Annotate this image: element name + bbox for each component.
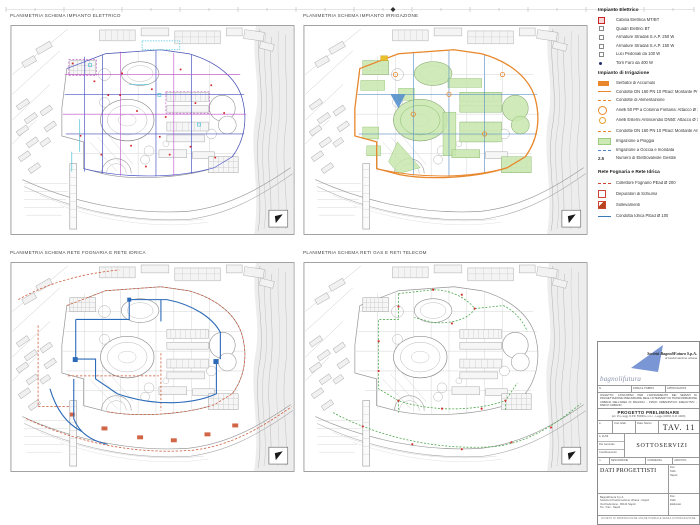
phase-subtitle: (art. 15 e segg. D.P.R. 554/99 e s.m.i. … xyxy=(598,415,699,418)
elettrovalvole-symbol: 2.5 xyxy=(598,156,613,161)
legend-item: Cabina Elettrica MT/BT xyxy=(598,16,698,25)
condotte-antincendio-symbol xyxy=(598,131,613,132)
drawing-title: SOTTOSERVIZI xyxy=(625,434,699,457)
legend-item: Torri Faro da 400 W xyxy=(598,59,698,68)
legend-item: Anelli Esterni Antincendio DN50: Attacco… xyxy=(598,115,698,126)
rev-header-cell: DESCRIZIONE xyxy=(610,458,646,464)
armature-150-symbol xyxy=(598,44,613,49)
condotta-idrica-symbol xyxy=(598,216,613,217)
panel-title-electrical: PLANIMETRIA SCHEMA IMPIANTO ELETTRICO xyxy=(10,13,121,18)
legend-item: Condotte di Alimentazione xyxy=(598,96,698,105)
anelli-esterni-symbol xyxy=(598,117,613,124)
legend-item: Collettore Fognario PEad Ø 200 xyxy=(598,178,698,189)
plan-panel-irrigation xyxy=(303,25,588,235)
plan-panel-gas-telecom xyxy=(303,262,588,472)
phase-row: PROGETTO PRELIMINARE (art. 15 e segg. D.… xyxy=(598,409,699,421)
title-block: Società BagnoliFutura S.p.A. di trasform… xyxy=(597,341,700,525)
designers-side-info: Doc. Tabb. Napoli xyxy=(668,465,699,493)
stack-cell: Coordinamento xyxy=(598,450,624,457)
legend-item: Serbatoi di Accumulo xyxy=(598,79,698,88)
tav-cell: Cod. Elab. xyxy=(613,421,636,433)
company-wordmark: bagnolifutura xyxy=(600,375,641,383)
condotte-principali-symbol xyxy=(598,91,613,92)
legend-item: Irrigazione a Goccia e Inondata xyxy=(598,146,698,155)
legend-item: Quadri Elettrici BT xyxy=(598,25,698,34)
drawing-title-row: a. 11/06 File Generale Coordinamento SOT… xyxy=(598,434,699,458)
tav-number: TAV. 11 xyxy=(659,421,699,433)
legend-item: Sollevamenti xyxy=(598,200,698,211)
panel-title-sewer-water: PLANIMETRIA SCHEMA RETE FOGNARIA E RETE … xyxy=(10,250,146,255)
legend-item: Depuratori di Schiuma xyxy=(598,189,698,200)
tav-cell: Data: Marzo xyxy=(636,421,659,433)
legend-irrigation: Impianto di Irrigazione Serbatoi di Accu… xyxy=(598,71,698,163)
armature-250-symbol xyxy=(598,35,613,40)
stack-cell: File Generale xyxy=(598,442,624,450)
designers-label: DATI PROGETTISTI xyxy=(598,465,668,493)
rev-header-cell: ARCHIVIO xyxy=(673,458,699,464)
legend-sewer-water: Rete Fognaria e Rete Idrica Collettore F… xyxy=(598,170,698,222)
sollevamenti-symbol xyxy=(598,201,613,209)
title-block-footer: Divieto di riproduzione anche parziale s… xyxy=(598,516,699,522)
designers-row: DATI PROGETTISTI Doc. Tabb. Napoli xyxy=(598,465,699,494)
legend-irrigation-title: Impianto di Irrigazione xyxy=(598,71,698,76)
plan-panel-electrical xyxy=(10,25,295,235)
stack-cell: a. 11/06 xyxy=(598,434,624,442)
rev-header-cell: n. xyxy=(598,458,610,464)
company-address: BagnoliFutura S.p.A. Società di Trasform… xyxy=(598,494,668,515)
legend-item: Condotte DN 160 PN 10 PEad: Montante Ant… xyxy=(598,126,698,137)
cabina-elettrica-symbol xyxy=(598,17,613,24)
legend-sewer-water-title: Rete Fognaria e Rete Idrica xyxy=(598,170,698,175)
depuratori-symbol xyxy=(598,190,613,198)
legend-item: Anelli 50 PP a Colonna Fontana: Attacco … xyxy=(598,105,698,116)
anelli-colonna-symbol xyxy=(598,106,613,115)
title-block-logo-row: Società BagnoliFutura S.p.A. di trasform… xyxy=(598,342,699,386)
header-cell: FIRMA E TIMBRO xyxy=(632,386,666,392)
legend-item: Armature Stradali S.A.P. 150 W xyxy=(598,42,698,51)
legend-item: Irrigazione a Pioggia xyxy=(598,136,698,146)
top-ruler xyxy=(0,1,700,10)
plan-panel-sewer-water xyxy=(10,262,295,472)
quadri-elettrici-symbol xyxy=(598,26,613,31)
header-cell: N. xyxy=(598,386,632,392)
address-row: BagnoliFutura S.p.A. Società di Trasform… xyxy=(598,494,699,516)
tav-row: a Cod. Elab. Data: Marzo TAV. 11 xyxy=(598,421,699,434)
header-cell: APPROVAZIONI xyxy=(666,386,699,392)
condotte-alimentazione-symbol xyxy=(598,100,613,101)
rev-header-cell: COMMESSA xyxy=(646,458,673,464)
luci-pedonali-symbol xyxy=(598,52,613,57)
legend-item: 2.5 Numero di Elettrovalvole Gestite xyxy=(598,154,698,163)
torri-faro-symbol xyxy=(598,62,613,65)
serbatoi-symbol xyxy=(598,81,613,86)
legend-item: Condotta Idrica PEad Ø 100 xyxy=(598,211,698,222)
revision-header-row: n. DESCRIZIONE COMMESSA ARCHIVIO xyxy=(598,458,699,465)
panel-title-irrigation: PLANIMETRIA SCHEMA IMPIANTO IRRIGAZIONE xyxy=(303,13,418,18)
legend-item: Armature Stradali S.A.P. 250 W xyxy=(598,33,698,42)
legend-item: Condotte DN 160 PN 10 PEad: Montante Pri… xyxy=(598,88,698,97)
drawing-sheet: { "panels": [ {"title": "PLANIMETRIA SCH… xyxy=(0,0,700,525)
tav-cell: a xyxy=(598,421,613,433)
panel-title-gas-telecom: PLANIMETRIA SCHEMA RETI GAS E RETI TELEC… xyxy=(303,250,427,255)
title-block-header-cells: N. FIRMA E TIMBRO APPROVAZIONI xyxy=(598,386,699,393)
company-tagline: di trasformazione urbana xyxy=(645,356,697,360)
legend-item: Luci Pedonali da 100 W xyxy=(598,50,698,59)
irrigazione-pioggia-symbol xyxy=(598,138,613,145)
address-side-info: Doc. Tabb. Elaborato xyxy=(668,494,699,515)
irrigazione-goccia-symbol xyxy=(598,150,613,151)
collettore-fognario-symbol xyxy=(598,183,613,184)
legend-electrical: Impianto Elettrico Cabina Elettrica MT/B… xyxy=(598,8,698,68)
project-description: Oggetto: concorso per l'affidamento dei … xyxy=(598,393,699,409)
legend-electrical-title: Impianto Elettrico xyxy=(598,8,698,13)
